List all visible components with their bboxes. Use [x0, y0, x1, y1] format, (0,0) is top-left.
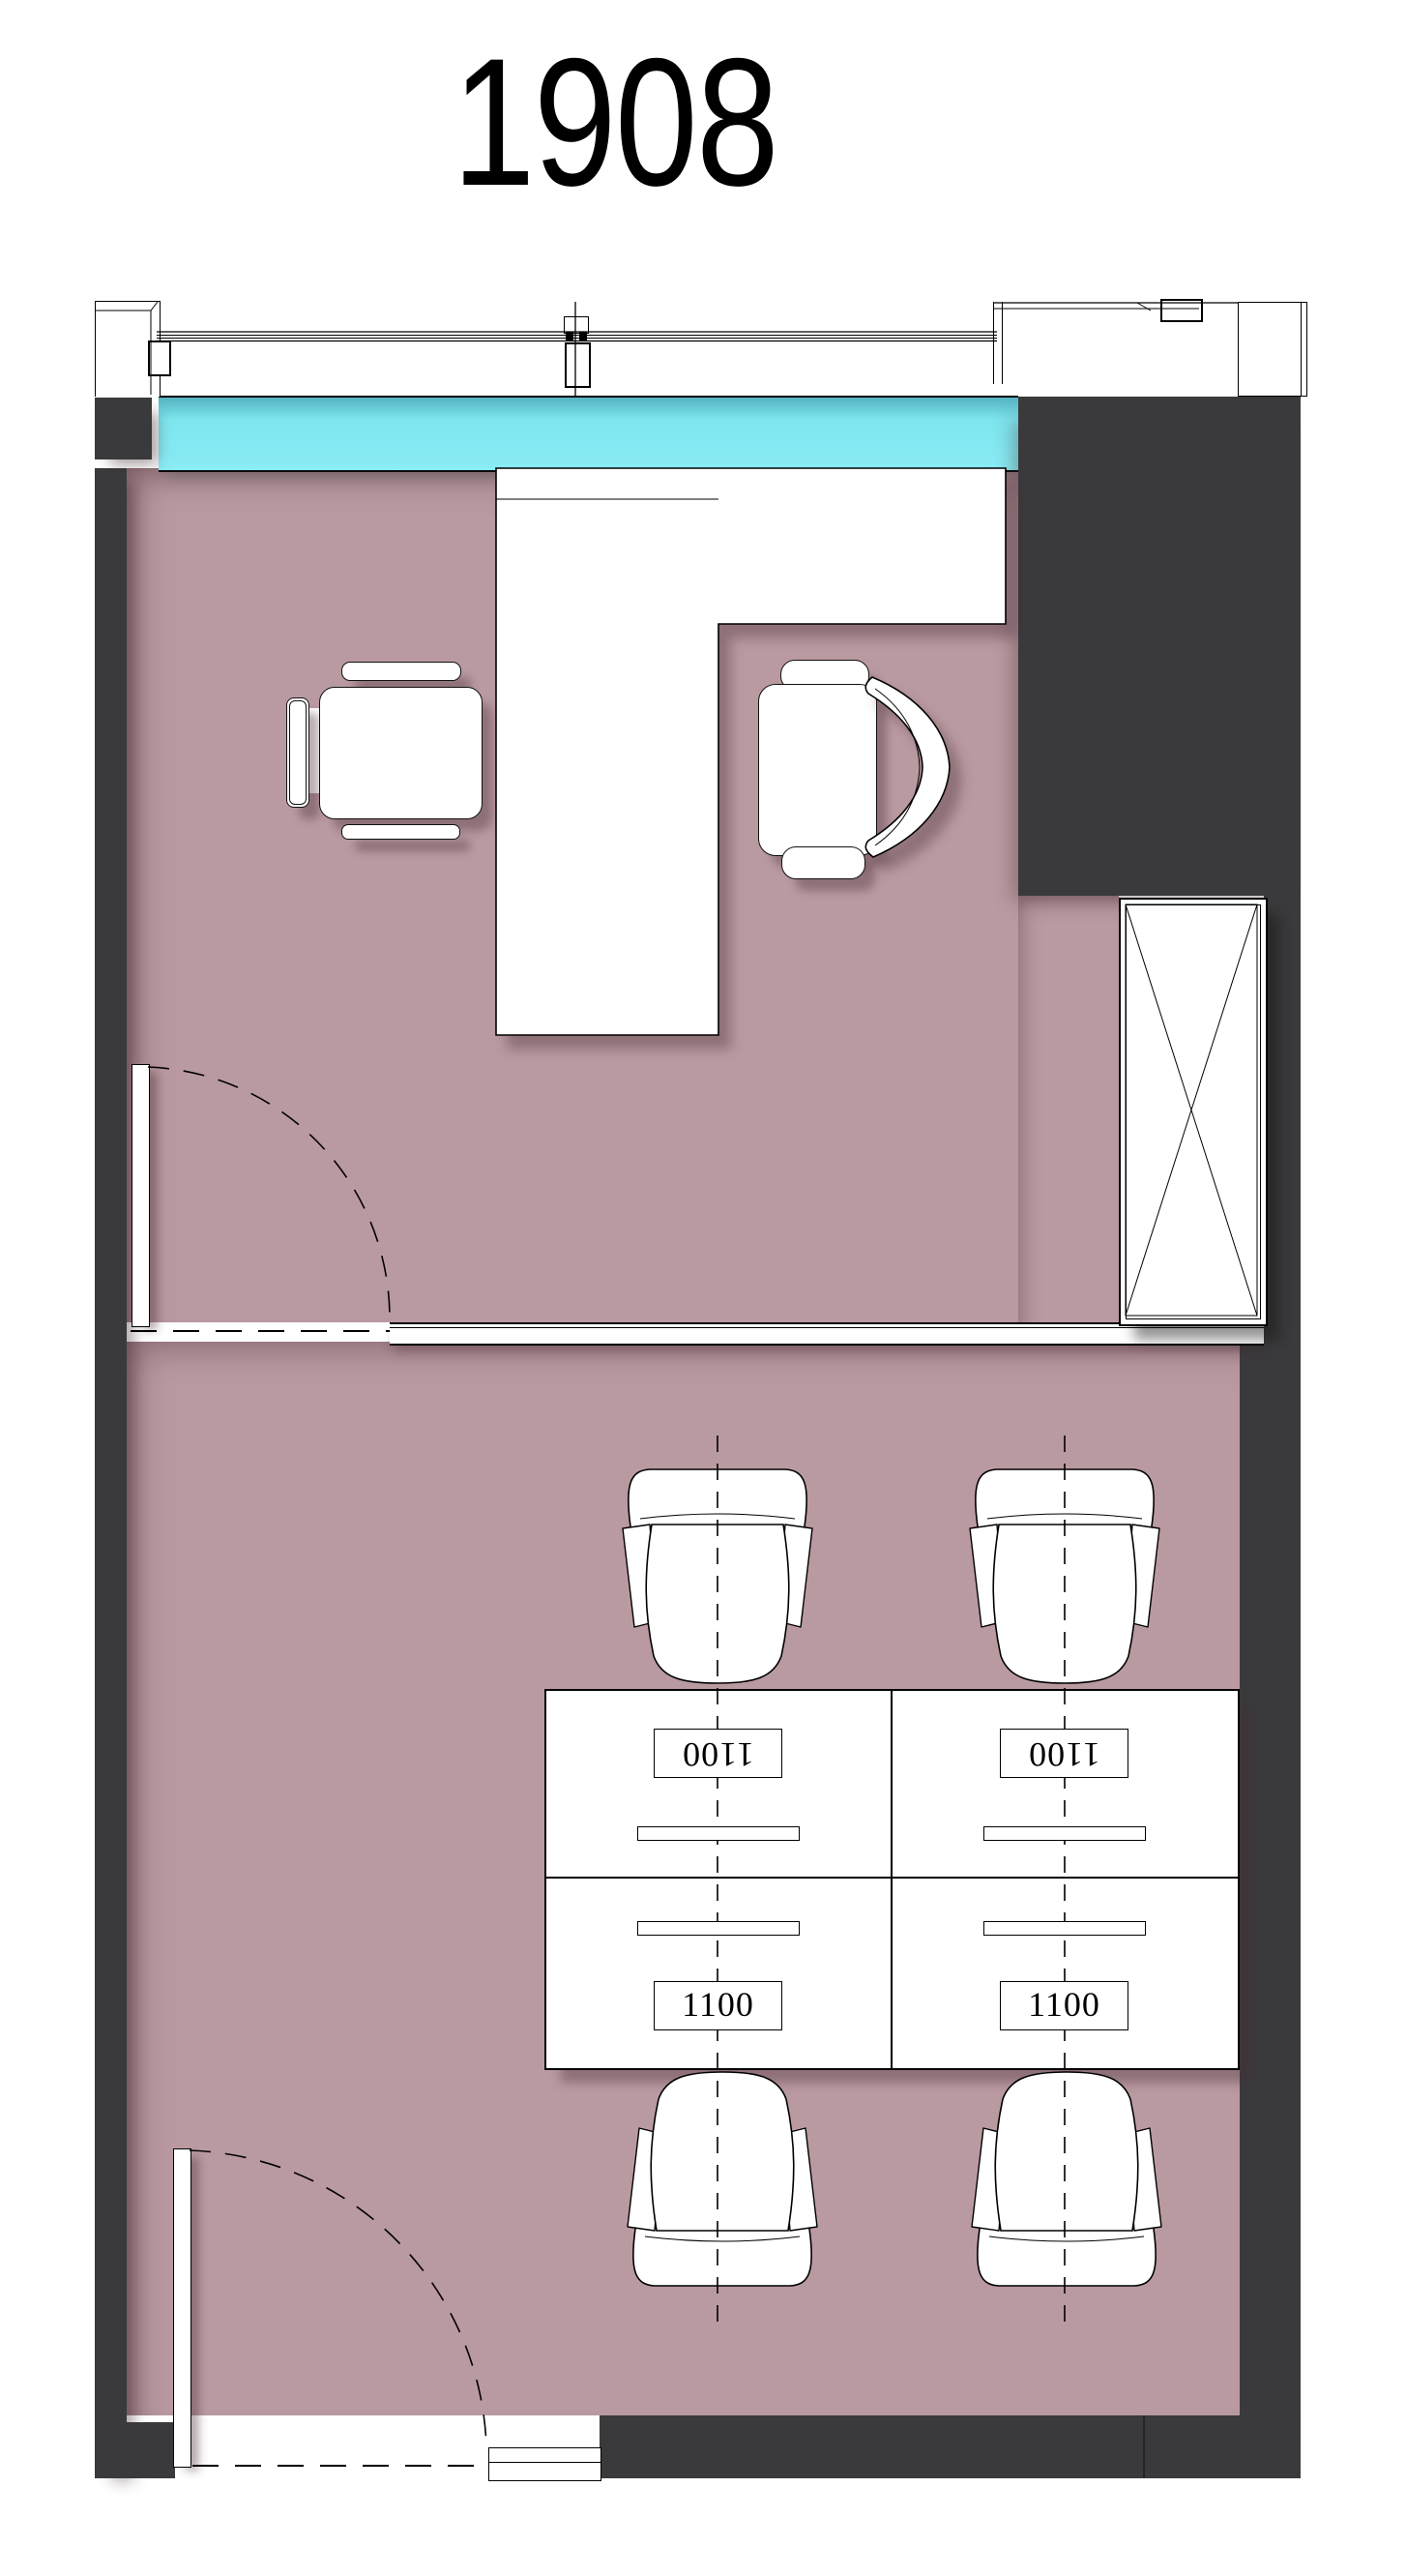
storage-cabinet-inner: [1126, 904, 1261, 1319]
curtainwall-right-corner-piece: [1238, 302, 1307, 397]
wall-beside-cabinet: [1264, 896, 1301, 1342]
window-glazing-band: [159, 396, 1018, 472]
room-number-title: 1908: [453, 35, 715, 209]
curtainwall-right-post: [993, 302, 1003, 384]
wall-bottom-seam: [1143, 2415, 1145, 2478]
corner-piece-inner-line: [1301, 303, 1302, 396]
executive-chair-armrest-bottom: [341, 824, 460, 840]
desk-grommet-slot: [983, 1826, 1146, 1841]
mullion-tick-left: [566, 332, 573, 341]
partition-inner-line: [390, 1327, 1264, 1328]
wall-lower-right: [1240, 1342, 1301, 2478]
threshold-divider: [489, 2462, 600, 2463]
upper-door-leaf: [132, 1064, 150, 1327]
upper-room-floor-extension: [1018, 896, 1119, 1322]
desk-dimension-label: 1100: [654, 1981, 782, 2030]
wall-top-left-block: [95, 398, 152, 459]
wall-upper-right: [1018, 397, 1301, 896]
executive-chair-backrest: [286, 697, 309, 808]
desk-grommet-slot: [637, 1826, 800, 1841]
desk-grommet-slot: [983, 1921, 1146, 1936]
desk-divider-horizontal: [546, 1877, 1238, 1879]
mullion-center-profile: [565, 342, 591, 388]
storage-cabinet: [1119, 898, 1268, 1326]
wall-left: [95, 468, 127, 2478]
floor-plan-canvas: 1908: [0, 0, 1406, 2576]
wall-cap-diagonal: [1137, 303, 1151, 311]
desk-divider-vertical: [891, 1691, 893, 2068]
desk-dimension-label: 1100: [654, 1729, 782, 1778]
lower-door-leaf: [173, 2148, 191, 2468]
upper-room-floor: [127, 468, 1018, 1322]
guest-chair-seat: [758, 684, 877, 856]
mullion-tick-right: [579, 332, 587, 341]
executive-chair-backrest-cushion: [289, 700, 307, 805]
wall-bottom-left-block: [95, 2422, 175, 2478]
executive-chair-armrest-top: [341, 662, 461, 681]
executive-chair-seat: [319, 687, 483, 819]
desk-grommet-slot: [637, 1921, 800, 1936]
guest-chair-armrest-bottom: [781, 846, 865, 879]
wall-bottom: [600, 2415, 1301, 2478]
desk-dimension-label: 1100: [1000, 1981, 1128, 2030]
workstation-desk-block: [544, 1689, 1240, 2070]
wall-cap-detail-box: [1160, 299, 1203, 322]
door-threshold: [488, 2447, 601, 2481]
mullion-left-profile: [148, 341, 171, 376]
desk-dimension-label: 1100: [1000, 1729, 1128, 1778]
